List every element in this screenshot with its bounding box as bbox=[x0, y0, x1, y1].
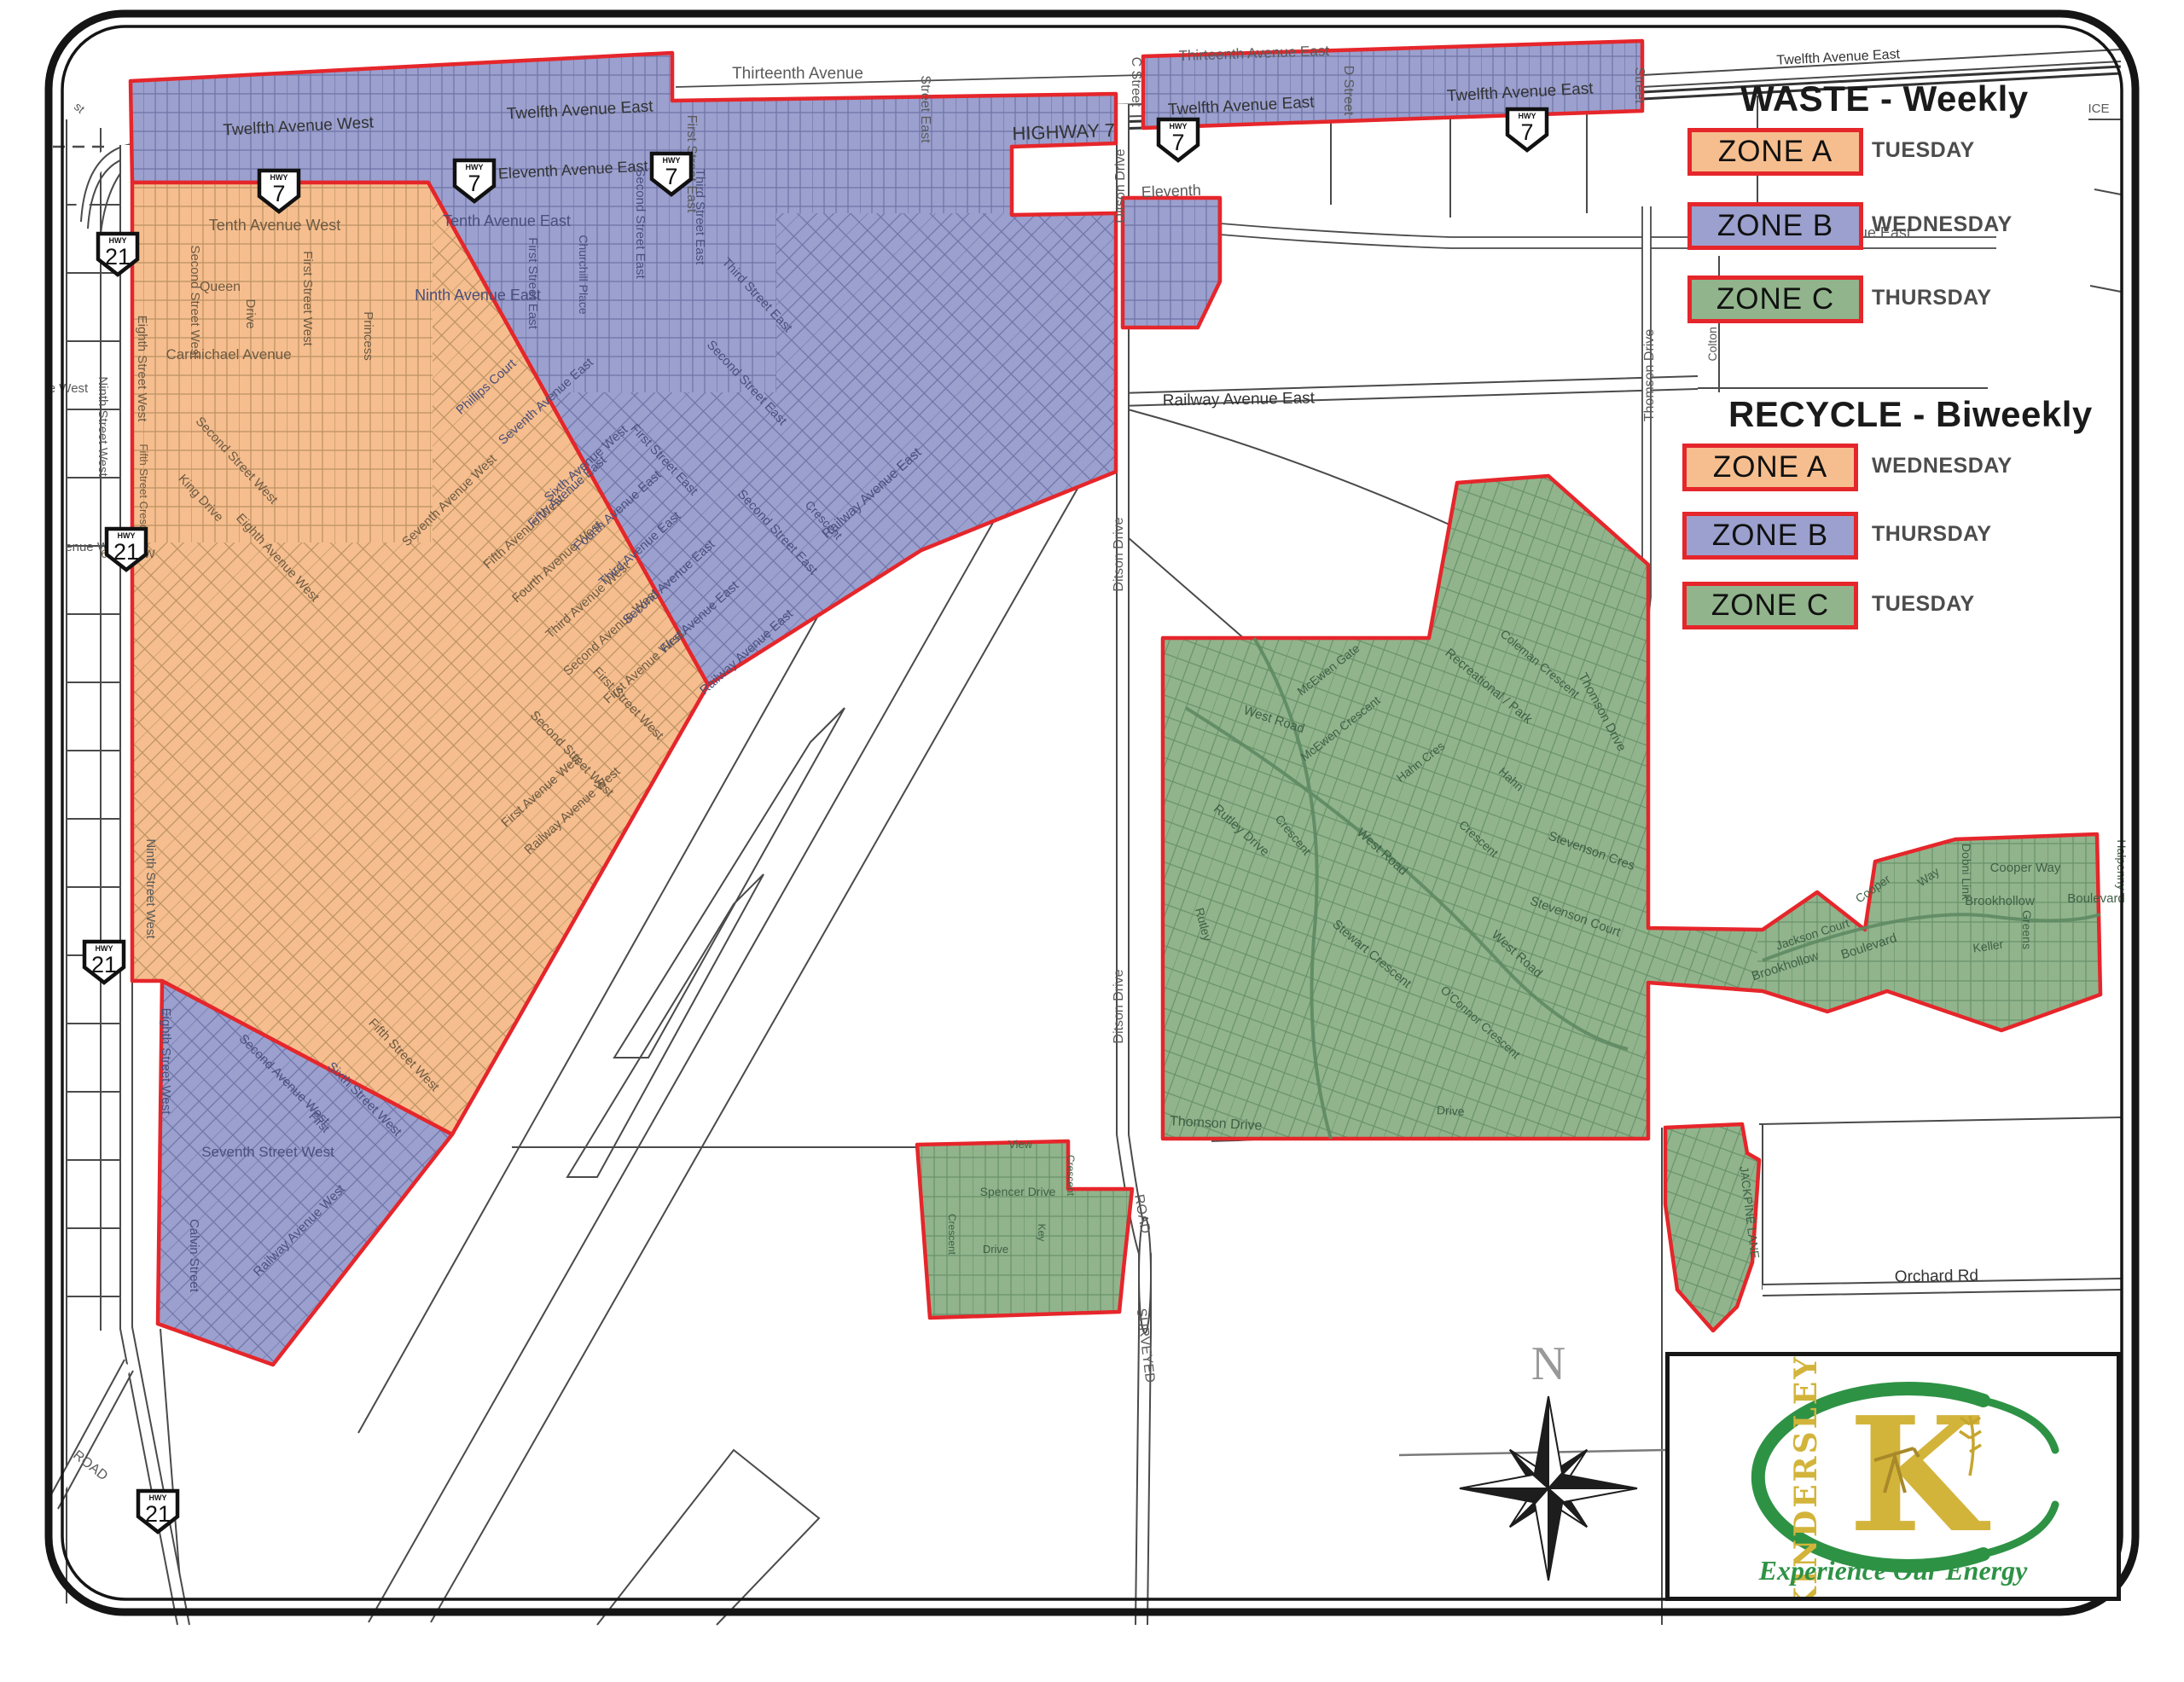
street-label: Calvin Street bbox=[187, 1219, 201, 1293]
compass-north-label: N bbox=[1531, 1337, 1565, 1390]
recycle-legend-title: RECYCLE - Biweekly bbox=[1728, 394, 2093, 435]
recycle-zone-b-day: THURSDAY bbox=[1872, 522, 1992, 547]
recycle-zone-a-day: WEDNESDAY bbox=[1872, 454, 2013, 478]
street-label: Drive bbox=[983, 1243, 1008, 1256]
street-label: e West bbox=[49, 381, 89, 396]
street-label: SURVEYED bbox=[1134, 1308, 1158, 1383]
street-label: Key bbox=[1036, 1224, 1048, 1242]
highway-7-shield: HWY7 bbox=[1507, 109, 1547, 150]
shield-number: 7 bbox=[468, 171, 480, 196]
street-label: D Street bbox=[1341, 66, 1356, 116]
shield-number: 21 bbox=[145, 1501, 171, 1527]
street-label: Street East bbox=[918, 75, 932, 143]
street-label: Seventh Street West bbox=[201, 1144, 334, 1160]
recycle-zone-b-chip: ZONE B bbox=[1682, 512, 1858, 560]
street-label: Ditson Drive bbox=[1112, 517, 1126, 591]
street-label: Boulevard bbox=[2067, 891, 2125, 906]
shield-number: 7 bbox=[272, 181, 285, 206]
street-label: Street bbox=[1632, 67, 1647, 104]
recycle-zone-c-chip: ZONE C bbox=[1682, 582, 1858, 629]
street-label: Ninth Street West bbox=[143, 838, 158, 939]
street-label: Queen bbox=[200, 280, 241, 294]
street-label: Drive bbox=[243, 299, 258, 328]
compass-rose: N bbox=[1399, 1337, 1665, 1580]
highway-21-shield: HWY21 bbox=[138, 1491, 177, 1532]
street-label: Thirteenth Avenue bbox=[732, 65, 863, 83]
street-label: Railway Avenue East bbox=[1163, 389, 1316, 409]
street-label: Ninth Avenue East bbox=[415, 287, 541, 304]
street-label: Carmichael Avenue bbox=[166, 346, 291, 362]
street-label: Second Street East bbox=[633, 168, 648, 279]
street-label: Ninth Street West bbox=[96, 376, 110, 477]
street-label: Third Street East bbox=[693, 169, 707, 265]
street-label: Eighth Street West bbox=[159, 1008, 173, 1116]
street-label: Princess bbox=[361, 311, 375, 361]
zone-c-region-main bbox=[1160, 473, 2107, 1143]
street-label: First Street East bbox=[526, 237, 540, 329]
shield-number: 21 bbox=[105, 244, 131, 270]
street-label: Spencer Drive bbox=[980, 1185, 1056, 1198]
zone-b-region-east-ditson bbox=[1123, 198, 1220, 328]
recycle-zone-c-day: TUESDAY bbox=[1872, 592, 1975, 617]
street-label: Crescent bbox=[1065, 1155, 1077, 1197]
street-label: Greens bbox=[2020, 910, 2034, 949]
street-label: Eleventh bbox=[1141, 182, 1201, 200]
street-label: HIGHWAY 7 bbox=[1012, 119, 1115, 144]
logo-tagline: Experience Our Energy bbox=[1758, 1555, 2028, 1586]
street-label: Churchill Place bbox=[577, 235, 590, 315]
waste-zone-a-chip: ZONE A bbox=[1687, 128, 1863, 176]
waste-zone-c-chip: ZONE C bbox=[1687, 275, 1863, 323]
waste-zone-a-label: ZONE A bbox=[1718, 135, 1833, 169]
waste-zone-a-day: TUESDAY bbox=[1872, 138, 1975, 163]
shield-number: 7 bbox=[665, 164, 677, 189]
street-label: Second Street West bbox=[188, 245, 202, 359]
street-label: ICE bbox=[2088, 101, 2109, 116]
street-label: Crescent bbox=[946, 1214, 958, 1256]
recycle-zone-a-label: ZONE A bbox=[1713, 450, 1827, 484]
street-label: Dobni Link bbox=[1960, 844, 1973, 901]
recycle-zone-c-label: ZONE C bbox=[1711, 589, 1829, 623]
highway-21-shield: HWY21 bbox=[84, 942, 124, 983]
street-label: First Street West bbox=[300, 251, 315, 346]
street-label: Ditson Drive bbox=[1113, 148, 1128, 223]
street-label: Drive bbox=[1437, 1103, 1466, 1118]
street-label: View bbox=[1008, 1138, 1033, 1151]
kindersley-logo-box: K KINDERSLEY Experience Our Energy bbox=[1665, 1352, 2121, 1601]
street-label: st bbox=[72, 100, 88, 116]
shield-number: 21 bbox=[91, 952, 117, 977]
street-label: Ditson Drive bbox=[1112, 969, 1126, 1043]
street-label: Eighth Street West bbox=[135, 316, 149, 423]
waste-zone-b-chip: ZONE B bbox=[1687, 202, 1863, 250]
waste-zone-b-label: ZONE B bbox=[1717, 209, 1833, 243]
kindersley-collection-zone-map: Thirteenth AvenueThirteenth Avenue EastS… bbox=[0, 0, 2184, 1682]
kindersley-logo: K KINDERSLEY Experience Our Energy bbox=[1670, 1356, 2117, 1597]
compass-star bbox=[1460, 1396, 1637, 1580]
shield-number: 7 bbox=[1171, 130, 1184, 155]
recycle-zone-a-chip: ZONE A bbox=[1682, 444, 1858, 491]
street-label: Brookhollow bbox=[1965, 894, 2035, 908]
shield-number: 21 bbox=[113, 539, 139, 565]
street-label: Orchard Rd bbox=[1895, 1267, 1979, 1286]
shield-number: 7 bbox=[1520, 119, 1533, 145]
street-label: Thomson Drive bbox=[1642, 329, 1657, 422]
street-label: C Street bbox=[1129, 57, 1143, 107]
highway-7-shield: HWY7 bbox=[1159, 119, 1198, 160]
waste-zone-c-label: ZONE C bbox=[1716, 282, 1834, 316]
waste-zone-b-day: WEDNESDAY bbox=[1872, 212, 2013, 237]
street-label: Cooper Way bbox=[1990, 861, 2061, 875]
street-label: Tenth Avenue West bbox=[209, 217, 340, 234]
waste-zone-c-day: THURSDAY bbox=[1872, 286, 1992, 310]
recycle-zone-b-label: ZONE B bbox=[1712, 519, 1828, 553]
street-label: Tenth Avenue East bbox=[443, 212, 571, 229]
waste-legend-title: WASTE - Weekly bbox=[1740, 78, 2029, 119]
